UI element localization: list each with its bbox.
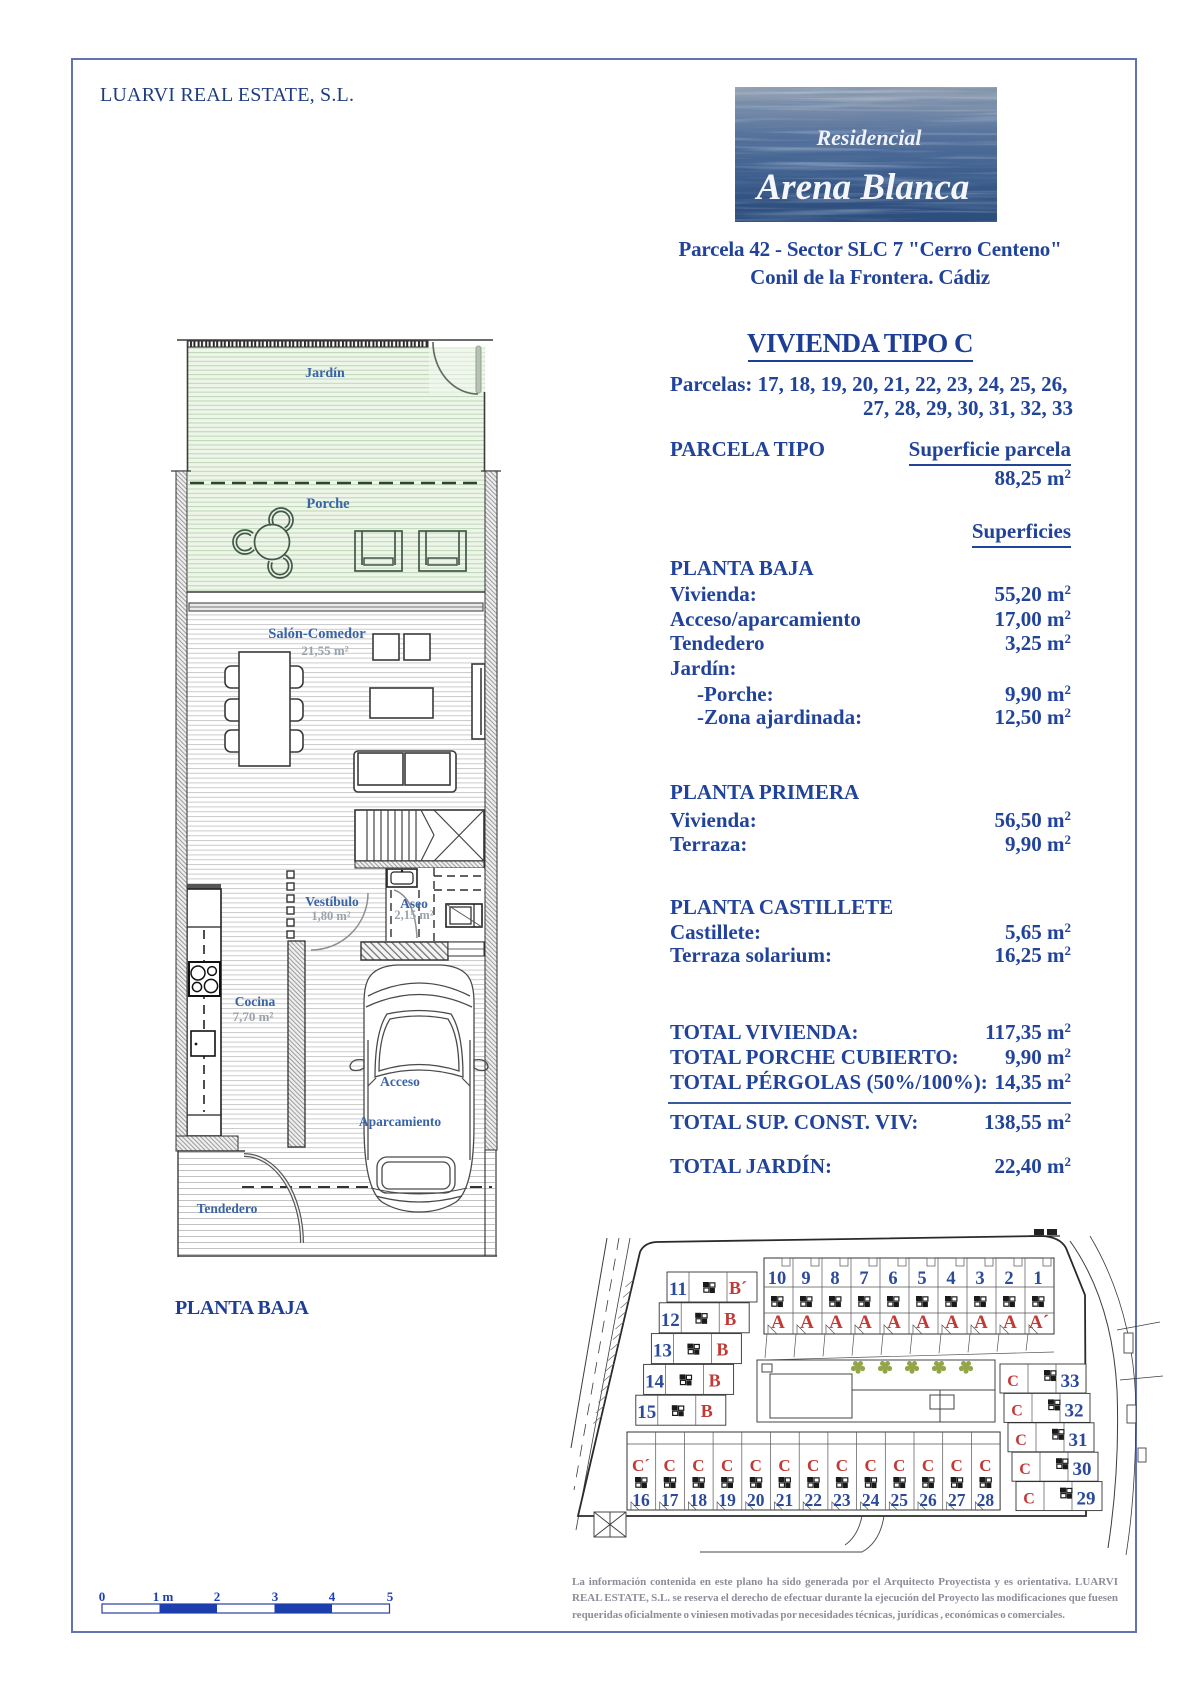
svg-text:21,55 m²: 21,55 m²	[301, 643, 348, 658]
svg-text:9: 9	[801, 1269, 810, 1289]
svg-text:C: C	[864, 1456, 876, 1475]
svg-text:C: C	[836, 1456, 848, 1475]
svg-text:31: 31	[1069, 1430, 1088, 1451]
svg-text:B´: B´	[729, 1278, 747, 1298]
svg-text:4: 4	[946, 1269, 955, 1289]
svg-text:Aparcamiento: Aparcamiento	[359, 1114, 441, 1129]
svg-text:6: 6	[888, 1269, 897, 1289]
svg-text:28: 28	[977, 1490, 995, 1510]
svg-text:A: A	[771, 1312, 785, 1333]
svg-text:33: 33	[1061, 1371, 1080, 1392]
svg-text:1 m: 1 m	[153, 1589, 174, 1604]
svg-text:30: 30	[1073, 1459, 1092, 1480]
svg-text:C: C	[721, 1456, 733, 1475]
svg-text:A: A	[1003, 1312, 1017, 1333]
svg-text:Acceso: Acceso	[380, 1074, 420, 1089]
svg-text:C: C	[979, 1456, 991, 1475]
svg-text:C´: C´	[632, 1456, 650, 1475]
svg-text:A: A	[800, 1312, 814, 1333]
svg-text:B: B	[724, 1309, 736, 1329]
svg-text:18: 18	[690, 1490, 708, 1510]
svg-text:16: 16	[632, 1490, 650, 1510]
svg-text:2: 2	[214, 1589, 221, 1604]
svg-text:C: C	[807, 1456, 819, 1475]
svg-text:3: 3	[272, 1589, 279, 1604]
svg-text:25: 25	[891, 1490, 909, 1510]
svg-text:A: A	[829, 1312, 843, 1333]
svg-text:19: 19	[718, 1490, 736, 1510]
svg-text:3: 3	[975, 1269, 984, 1289]
svg-text:C: C	[893, 1456, 905, 1475]
svg-text:C: C	[922, 1456, 934, 1475]
svg-text:Salón-Comedor: Salón-Comedor	[268, 626, 366, 642]
svg-text:2: 2	[1004, 1269, 1013, 1289]
svg-text:17: 17	[661, 1490, 679, 1510]
svg-text:Tendedero: Tendedero	[197, 1201, 258, 1216]
svg-text:0: 0	[99, 1589, 106, 1604]
svg-text:B: B	[709, 1370, 721, 1390]
svg-text:13: 13	[653, 1341, 672, 1362]
svg-text:5: 5	[387, 1589, 394, 1604]
svg-text:11: 11	[669, 1279, 687, 1300]
svg-text:10: 10	[768, 1269, 787, 1289]
svg-text:A: A	[974, 1312, 988, 1333]
svg-text:Vestíbulo: Vestíbulo	[305, 894, 359, 909]
svg-text:29: 29	[1077, 1489, 1096, 1510]
svg-text:5: 5	[917, 1269, 926, 1289]
svg-text:1: 1	[1033, 1269, 1042, 1289]
svg-text:A: A	[945, 1312, 959, 1333]
svg-text:32: 32	[1065, 1400, 1084, 1421]
svg-text:C: C	[1015, 1432, 1027, 1449]
svg-text:12: 12	[661, 1310, 680, 1331]
svg-text:A´: A´	[1029, 1312, 1049, 1333]
svg-text:20: 20	[747, 1490, 765, 1510]
svg-text:C: C	[1011, 1402, 1023, 1419]
svg-text:Cocina: Cocina	[235, 994, 276, 1009]
svg-text:A: A	[916, 1312, 930, 1333]
svg-text:27: 27	[948, 1490, 966, 1510]
svg-text:C: C	[1019, 1461, 1031, 1478]
svg-text:C: C	[750, 1456, 762, 1475]
svg-text:26: 26	[919, 1490, 937, 1510]
svg-text:Jardín: Jardín	[305, 366, 345, 381]
svg-text:14: 14	[645, 1371, 665, 1392]
svg-text:8: 8	[830, 1269, 839, 1289]
svg-text:A: A	[858, 1312, 872, 1333]
svg-text:C: C	[951, 1456, 963, 1475]
svg-text:C: C	[778, 1456, 790, 1475]
svg-text:7,70 m²: 7,70 m²	[233, 1009, 274, 1024]
svg-text:B: B	[716, 1340, 728, 1360]
svg-text:Porche: Porche	[306, 496, 350, 512]
svg-text:C: C	[664, 1456, 676, 1475]
svg-text:21: 21	[776, 1490, 794, 1510]
svg-text:7: 7	[859, 1269, 868, 1289]
svg-text:2,15 m²: 2,15 m²	[394, 908, 433, 922]
svg-text:23: 23	[833, 1490, 851, 1510]
svg-text:24: 24	[862, 1490, 880, 1510]
svg-text:C: C	[1007, 1373, 1019, 1390]
svg-text:C: C	[1023, 1491, 1035, 1508]
svg-text:15: 15	[637, 1402, 656, 1423]
svg-text:22: 22	[804, 1490, 822, 1510]
svg-text:1,80 m²: 1,80 m²	[311, 909, 350, 923]
svg-text:B: B	[701, 1401, 713, 1421]
svg-text:4: 4	[329, 1589, 336, 1604]
svg-text:C: C	[692, 1456, 704, 1475]
svg-text:A: A	[887, 1312, 901, 1333]
